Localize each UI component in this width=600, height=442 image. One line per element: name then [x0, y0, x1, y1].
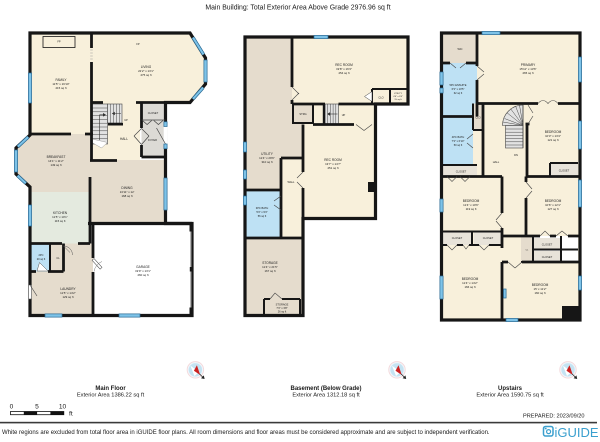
svg-text:10: 10 [59, 404, 67, 411]
svg-text:PREPARED: 2023/09/20: PREPARED: 2023/09/20 [523, 414, 584, 420]
svg-text:UP: UP [124, 118, 128, 122]
svg-text:3PC BATH: 3PC BATH [256, 206, 269, 210]
svg-text:56 sq ft: 56 sq ft [258, 214, 267, 218]
svg-text:7'3" x 3'8": 7'3" x 3'8" [276, 306, 287, 310]
svg-text:0: 0 [10, 404, 14, 411]
svg-text:6'3" x 10'5": 6'3" x 10'5" [452, 87, 465, 91]
svg-text:50 sq ft: 50 sq ft [454, 143, 463, 147]
svg-text:WALL: WALL [288, 180, 296, 184]
svg-text:127 sq ft: 127 sq ft [547, 207, 558, 211]
svg-text:FP: FP [57, 40, 61, 44]
svg-text:129 sq ft: 129 sq ft [62, 295, 73, 299]
svg-text:CLO: CLO [378, 96, 383, 100]
svg-text:260 sq ft: 260 sq ft [137, 273, 148, 277]
svg-text:4'6" x 3'4": 4'6" x 3'4" [393, 96, 403, 98]
svg-text:Exterior Area 1312.18 sq ft: Exterior Area 1312.18 sq ft [292, 393, 360, 399]
svg-text:15 sq ft: 15 sq ft [394, 98, 402, 101]
svg-text:UTILITY: UTILITY [394, 93, 403, 95]
svg-text:CLO: CLO [475, 116, 480, 120]
svg-text:ft: ft [69, 411, 73, 418]
svg-text:Upstairs: Upstairs [498, 386, 523, 392]
svg-text:iGUIDE: iGUIDE [555, 425, 599, 440]
svg-text:20 sq ft: 20 sq ft [37, 257, 46, 261]
svg-text:310 sq ft: 310 sq ft [261, 160, 272, 164]
svg-text:121 sq ft: 121 sq ft [547, 138, 558, 142]
svg-text:WIC: WIC [457, 47, 462, 51]
svg-text:254 sq ft: 254 sq ft [338, 71, 349, 75]
svg-text:167 sq ft: 167 sq ft [264, 269, 275, 273]
svg-text:FOYER: FOYER [148, 138, 157, 142]
svg-text:149 sq ft: 149 sq ft [50, 163, 61, 167]
svg-text:Exterior Area 1590.75 sq ft: Exterior Area 1590.75 sq ft [476, 393, 544, 399]
svg-text:4PC BATH: 4PC BATH [452, 135, 465, 139]
svg-text:5: 5 [35, 404, 39, 411]
svg-text:CLOSET: CLOSET [542, 243, 553, 247]
svg-text:CLOSET: CLOSET [542, 255, 553, 259]
svg-text:275 sq ft: 275 sq ft [140, 73, 151, 77]
svg-text:FP: FP [136, 42, 140, 46]
svg-text:HALL: HALL [120, 137, 128, 141]
svg-text:7'3" x 6'10": 7'3" x 6'10" [452, 139, 465, 143]
svg-text:Main Building: Total Exterior: Main Building: Total Exterior Area Above… [205, 5, 390, 12]
svg-text:115 sq ft: 115 sq ft [55, 219, 66, 223]
svg-text:CLOSET: CLOSET [559, 169, 570, 173]
svg-text:168 sq ft: 168 sq ft [121, 194, 132, 198]
svg-text:Basement (Below Grade): Basement (Below Grade) [290, 386, 361, 392]
svg-text:119 sq ft: 119 sq ft [466, 207, 477, 211]
svg-text:HALL: HALL [493, 160, 500, 164]
svg-text:215 sq ft: 215 sq ft [55, 86, 66, 90]
svg-text:251 sq ft: 251 sq ft [327, 166, 338, 170]
svg-text:62 sq ft: 62 sq ft [454, 91, 463, 95]
svg-text:CLOSET: CLOSET [483, 236, 494, 240]
svg-text:UP: UP [342, 113, 346, 117]
svg-text:CL: CL [56, 256, 60, 260]
svg-text:Exterior Area 1386.22 sq ft: Exterior Area 1386.22 sq ft [77, 393, 145, 399]
svg-text:160 sq ft: 160 sq ft [534, 291, 545, 295]
svg-text:166 sq ft: 166 sq ft [464, 285, 475, 289]
svg-text:CLOSET: CLOSET [456, 170, 467, 174]
svg-text:DN: DN [514, 153, 518, 157]
svg-text:CLOSET: CLOSET [452, 236, 463, 240]
svg-text:26 sq ft: 26 sq ft [278, 310, 287, 314]
svg-text:STRG: STRG [299, 112, 306, 116]
svg-text:STORAGE: STORAGE [276, 303, 289, 307]
svg-text:265 sq ft: 265 sq ft [522, 71, 533, 75]
svg-text:5PC ENSUITE: 5PC ENSUITE [449, 83, 466, 87]
svg-text:Main Floor: Main Floor [95, 386, 126, 392]
svg-text:2PC: 2PC [38, 253, 43, 257]
svg-text:5'3" x 9'3": 5'3" x 9'3" [256, 210, 267, 214]
svg-text:CLOSET: CLOSET [148, 111, 159, 115]
svg-text:White regions are excluded fro: White regions are excluded from total fl… [2, 430, 490, 436]
